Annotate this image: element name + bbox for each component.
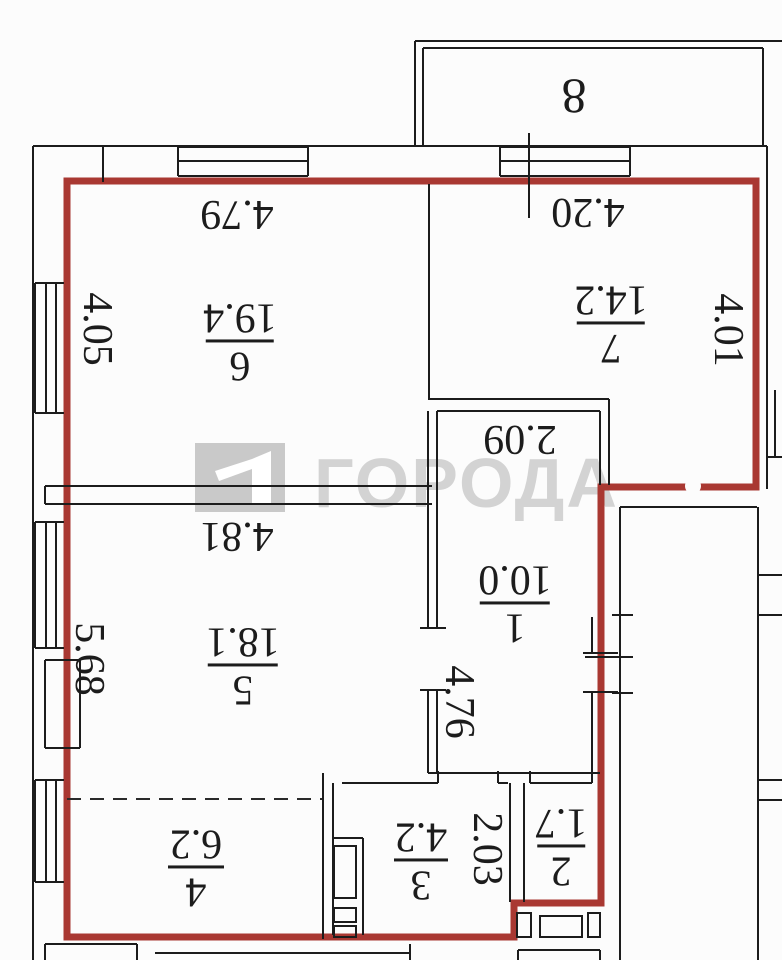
room-5-area: 18.1 — [206, 623, 280, 660]
scan-artifact-dot — [685, 478, 701, 494]
entrance-door-marks — [517, 913, 600, 937]
dim-room5-height: 5.68 — [68, 622, 110, 696]
room-2-number: 2 — [551, 852, 572, 889]
dim-room6-width: 4.79 — [200, 193, 274, 235]
room-3-number: 3 — [411, 866, 432, 903]
room-5-number: 5 — [233, 671, 254, 708]
room-5-label: 5 18.1 — [206, 623, 280, 708]
room-7-label: 7 14.2 — [574, 281, 648, 366]
plan-linework — [0, 0, 782, 960]
dim-room7-height: 4.01 — [707, 293, 749, 367]
lower-floor-structures — [45, 944, 600, 960]
room-6-area: 19.4 — [203, 299, 277, 336]
room-1-label: 1 10.0 — [478, 561, 552, 646]
room-1-area: 10.0 — [478, 561, 552, 598]
room-8-label: 8 — [562, 72, 587, 122]
dim-room3-height: 2.03 — [466, 812, 508, 886]
dim-room6-height: 4.05 — [76, 292, 118, 366]
room-1-number: 1 — [505, 609, 526, 646]
room-4-label: 4 6.2 — [168, 825, 224, 910]
room-6-label: 6 19.4 — [203, 299, 277, 384]
room-2-area: 1.7 — [535, 804, 588, 841]
stairwell-walls — [585, 507, 782, 960]
room-4-number: 4 — [186, 873, 207, 910]
dim-room5-width: 4.81 — [200, 515, 274, 557]
ventilation-shaft — [334, 846, 356, 937]
room-7-number: 7 — [601, 329, 622, 366]
room-3-label: 3 4.2 — [394, 818, 448, 903]
room-4-area: 6.2 — [170, 825, 223, 862]
dim-closet-width: 2.09 — [483, 418, 557, 460]
room-2-label: 2 1.7 — [535, 804, 588, 889]
windows — [35, 133, 630, 882]
floor-plan: ГОРОДА — [0, 0, 782, 960]
dim-hall-height: 4.76 — [438, 665, 480, 739]
room-3-area: 4.2 — [395, 818, 448, 855]
room-7-area: 14.2 — [574, 281, 648, 318]
room-6-number: 6 — [230, 347, 251, 384]
balcony-outline — [415, 41, 782, 146]
dim-room7-width: 4.20 — [551, 191, 625, 233]
